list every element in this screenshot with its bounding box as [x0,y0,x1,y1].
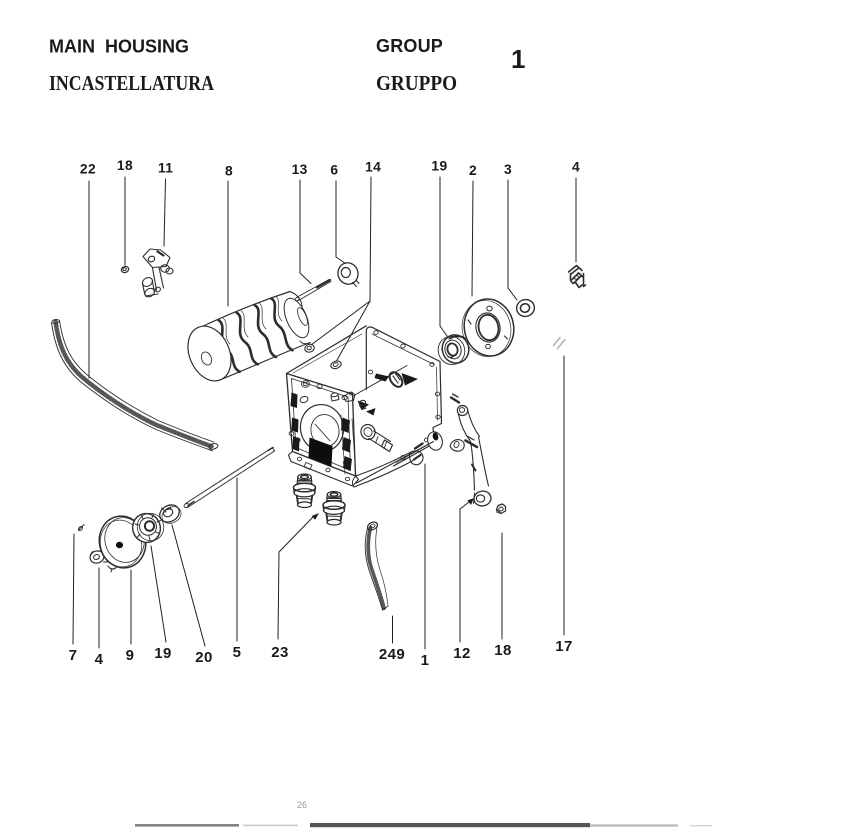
svg-text:18: 18 [494,642,512,659]
svg-text:5: 5 [233,644,242,661]
svg-text:20: 20 [195,649,213,666]
svg-text:MAIN HOUSING: MAIN HOUSING [49,37,189,57]
svg-text:26: 26 [297,800,307,810]
svg-text:18: 18 [117,158,133,173]
svg-text:4: 4 [572,160,580,175]
svg-text:GRUPPO: GRUPPO [376,71,457,95]
svg-text:14: 14 [365,159,381,174]
svg-text:8: 8 [225,163,233,178]
svg-text:13: 13 [292,162,308,177]
svg-text:11: 11 [158,161,173,176]
svg-text:1: 1 [511,44,525,74]
svg-text:12: 12 [453,645,471,662]
svg-text:INCASTELLATURA: INCASTELLATURA [49,71,215,95]
svg-text:4: 4 [95,651,104,668]
svg-text:23: 23 [271,644,289,661]
svg-text:1: 1 [421,652,430,669]
svg-text:19: 19 [431,159,447,174]
svg-text:22: 22 [80,162,96,177]
svg-text:19: 19 [154,645,172,662]
svg-text:7: 7 [69,647,78,664]
svg-text:3: 3 [504,162,512,177]
svg-text:6: 6 [330,163,338,178]
svg-text:9: 9 [126,647,135,664]
svg-text:17: 17 [555,638,573,655]
svg-text:GROUP: GROUP [376,36,443,56]
svg-text:2: 2 [469,163,477,178]
svg-text:249: 249 [379,646,405,663]
